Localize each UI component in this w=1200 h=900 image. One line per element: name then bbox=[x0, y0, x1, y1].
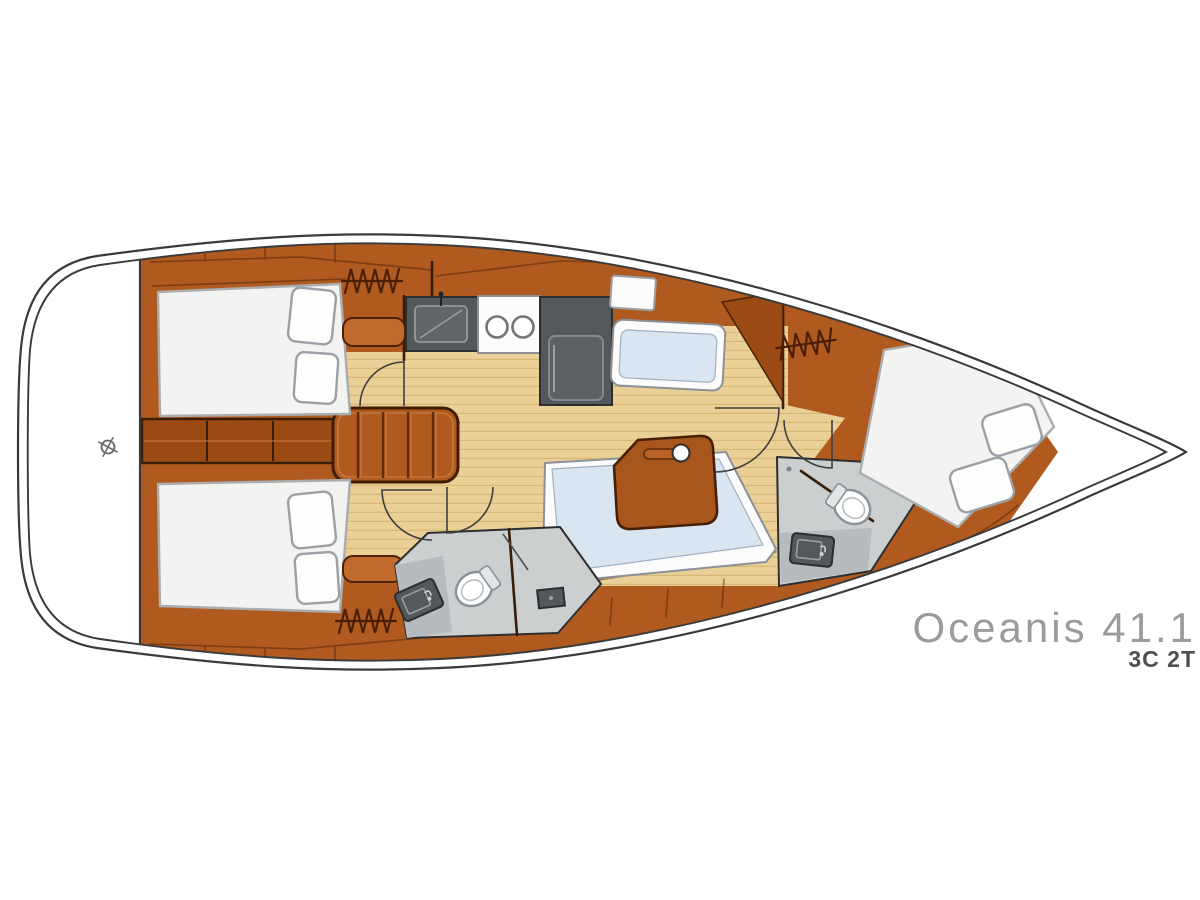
burner-icon bbox=[487, 317, 508, 338]
table-cup-holder bbox=[673, 445, 690, 462]
aft-cabin-starboard-shelf bbox=[343, 556, 403, 582]
companionway-steps bbox=[333, 408, 458, 482]
pillow bbox=[293, 352, 338, 405]
pillow bbox=[294, 552, 339, 605]
saloon-settee-port bbox=[610, 319, 725, 391]
saloon-table bbox=[614, 436, 717, 529]
galley-stove bbox=[478, 296, 540, 353]
pillow bbox=[287, 287, 336, 345]
model-title: Oceanis 41.1 bbox=[913, 604, 1197, 651]
boat-floor-plan-page: Oceanis 41.1 3C 2T bbox=[0, 0, 1200, 900]
drain bbox=[787, 467, 792, 472]
aft-head-vanity bbox=[537, 588, 565, 609]
burner-icon bbox=[513, 317, 534, 338]
forward-head-sink bbox=[790, 533, 835, 567]
engine-compartment bbox=[142, 419, 338, 463]
boat-floor-plan: Oceanis 41.1 3C 2T bbox=[0, 0, 1200, 900]
aft-cabin-port-shelf bbox=[343, 318, 405, 346]
chart-table bbox=[610, 276, 656, 311]
galley-fridge bbox=[540, 297, 612, 405]
galley-sink-unit bbox=[406, 292, 478, 352]
pillow bbox=[287, 491, 336, 549]
layout-code: 3C 2T bbox=[1128, 646, 1196, 672]
